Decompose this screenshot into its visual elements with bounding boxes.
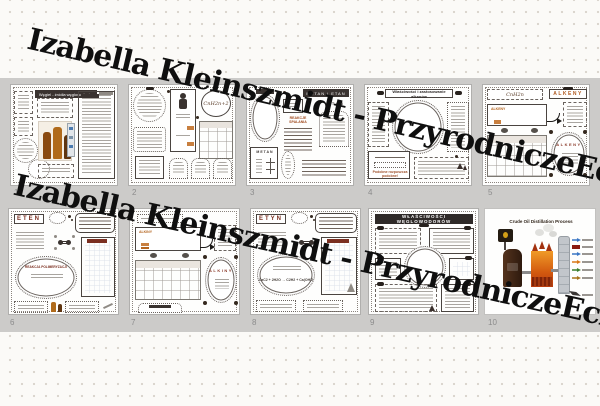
banner-title: WŁAŚCIWOŚCI WĘGLOWODORÓW bbox=[375, 214, 473, 224]
page-number-6: 6 bbox=[10, 318, 14, 327]
eten-title-text: ETEN bbox=[17, 216, 41, 222]
highlight-mark bbox=[187, 126, 194, 130]
text-lines bbox=[173, 132, 193, 140]
equation-line bbox=[30, 283, 64, 289]
highlight-mark bbox=[494, 120, 501, 124]
text-block bbox=[14, 117, 33, 136]
data-table bbox=[199, 121, 233, 159]
text-lines bbox=[506, 106, 544, 112]
distillation-column bbox=[558, 236, 570, 294]
carbide-equation: CaC2 + 2H2O → C2H2 + Ca(OH)2 bbox=[258, 277, 314, 283]
oval-note bbox=[281, 151, 295, 179]
structural-formula-bond bbox=[266, 169, 275, 170]
text-lines bbox=[372, 154, 408, 161]
side-heading bbox=[81, 94, 99, 98]
page-number-5: 5 bbox=[488, 188, 492, 197]
tower-icon bbox=[347, 283, 355, 292]
page-number-9: 9 bbox=[370, 318, 374, 327]
alkyne-table bbox=[135, 260, 201, 300]
text-lines bbox=[28, 271, 66, 281]
fraction-arrow-fueloil bbox=[572, 276, 581, 280]
clip-blob bbox=[531, 128, 538, 133]
person-figure-body bbox=[179, 99, 187, 109]
bullet-list bbox=[13, 229, 47, 253]
tombstone-note bbox=[213, 158, 232, 179]
metan-label: METAN bbox=[253, 149, 277, 154]
tombstone-note bbox=[191, 158, 210, 179]
clip-decoration bbox=[146, 87, 154, 90]
equations-block bbox=[299, 157, 349, 179]
bottom-note bbox=[14, 301, 48, 313]
page-number-7: 7 bbox=[131, 318, 135, 327]
bottom-tombstone bbox=[138, 303, 182, 313]
tombstone-heading bbox=[149, 305, 171, 308]
text-lines bbox=[173, 111, 193, 123]
note-box: Podobne rozpuszcza podobne! bbox=[368, 151, 410, 179]
text-lines bbox=[253, 156, 265, 176]
orange-note: Podobne rozpuszcza podobne! bbox=[370, 170, 410, 177]
page-number-8: 8 bbox=[252, 318, 256, 327]
center-panel bbox=[170, 89, 196, 152]
keyword: ALKENY bbox=[491, 107, 505, 111]
structural-formula-bond bbox=[266, 162, 275, 163]
oval-title: ALKINY bbox=[206, 267, 236, 273]
formula-box: CnH2n bbox=[487, 89, 543, 100]
text-block bbox=[133, 127, 166, 152]
fraction-arrow-diesel bbox=[572, 268, 581, 272]
highlight-mark bbox=[141, 247, 149, 250]
clip-blob bbox=[150, 253, 157, 258]
polymerization-oval: REAKCJA POLIMERYZACJI bbox=[15, 256, 77, 299]
text-block bbox=[135, 156, 164, 179]
checklist-notepad bbox=[81, 237, 115, 297]
tombstone-note bbox=[169, 158, 188, 179]
text-lines bbox=[212, 276, 232, 292]
page-preview-screen: { "watermark": { "text": "Izabella Klein… bbox=[0, 0, 600, 406]
sign-pole bbox=[504, 242, 506, 250]
page-number-4: 4 bbox=[368, 188, 372, 197]
fraction-arrow-naphtha bbox=[572, 252, 581, 256]
alkiny-oval: ALKINY bbox=[205, 257, 237, 303]
smoke-puff bbox=[535, 229, 544, 236]
bottle-icon bbox=[51, 302, 56, 312]
bottom-note bbox=[303, 300, 343, 312]
worksheet-title: Właściwości i zastosowanie alkanów bbox=[385, 89, 453, 98]
alkeny-header: ALKENY bbox=[549, 89, 587, 99]
structural-formula bbox=[270, 158, 271, 174]
oval-header: REAKCJA POLIMERYZACJI bbox=[16, 264, 76, 269]
etyn-title-text: ETYN bbox=[259, 216, 283, 222]
fraction-arrow-gas bbox=[572, 238, 581, 242]
combustion-plaque bbox=[315, 213, 357, 233]
fraction-arrow-kerosene bbox=[572, 260, 581, 264]
text-block bbox=[37, 98, 73, 118]
text-lines bbox=[491, 113, 544, 119]
inner-strip bbox=[374, 162, 406, 168]
molecule-drawing bbox=[53, 233, 75, 251]
distillation-column-illustration bbox=[67, 123, 75, 157]
tree-icon bbox=[463, 165, 467, 170]
tree-icon bbox=[429, 305, 435, 311]
text-block bbox=[563, 102, 587, 127]
bottle-icon bbox=[58, 304, 62, 312]
bottom-note bbox=[65, 301, 99, 313]
sidebar-text-column bbox=[78, 91, 115, 179]
highlight-mark bbox=[187, 142, 194, 146]
definition-circle bbox=[133, 89, 166, 122]
caption-line bbox=[505, 178, 533, 184]
page-thumbnail-6[interactable]: ETEN REAKCJA POLIMERYZACJI bbox=[8, 208, 119, 315]
definition-box: ALKENY bbox=[487, 104, 547, 126]
metan-box: METAN bbox=[250, 147, 278, 179]
arrowhead-icon bbox=[557, 118, 562, 124]
highlight-mark bbox=[141, 243, 149, 246]
fraction-label-block bbox=[572, 245, 580, 249]
synonym-oval bbox=[291, 212, 308, 224]
page-number-3: 3 bbox=[250, 188, 254, 197]
diagram-title: Crude Oil Distillation Process bbox=[499, 218, 583, 225]
notepad-heading bbox=[87, 239, 107, 243]
smoke-puff bbox=[549, 231, 557, 237]
text-block bbox=[14, 91, 33, 114]
page-number-10: 10 bbox=[488, 318, 497, 327]
eten-title: ETEN bbox=[14, 214, 44, 224]
clip-blob bbox=[182, 253, 189, 258]
oil-sign bbox=[498, 229, 513, 242]
bottom-note bbox=[256, 300, 296, 312]
